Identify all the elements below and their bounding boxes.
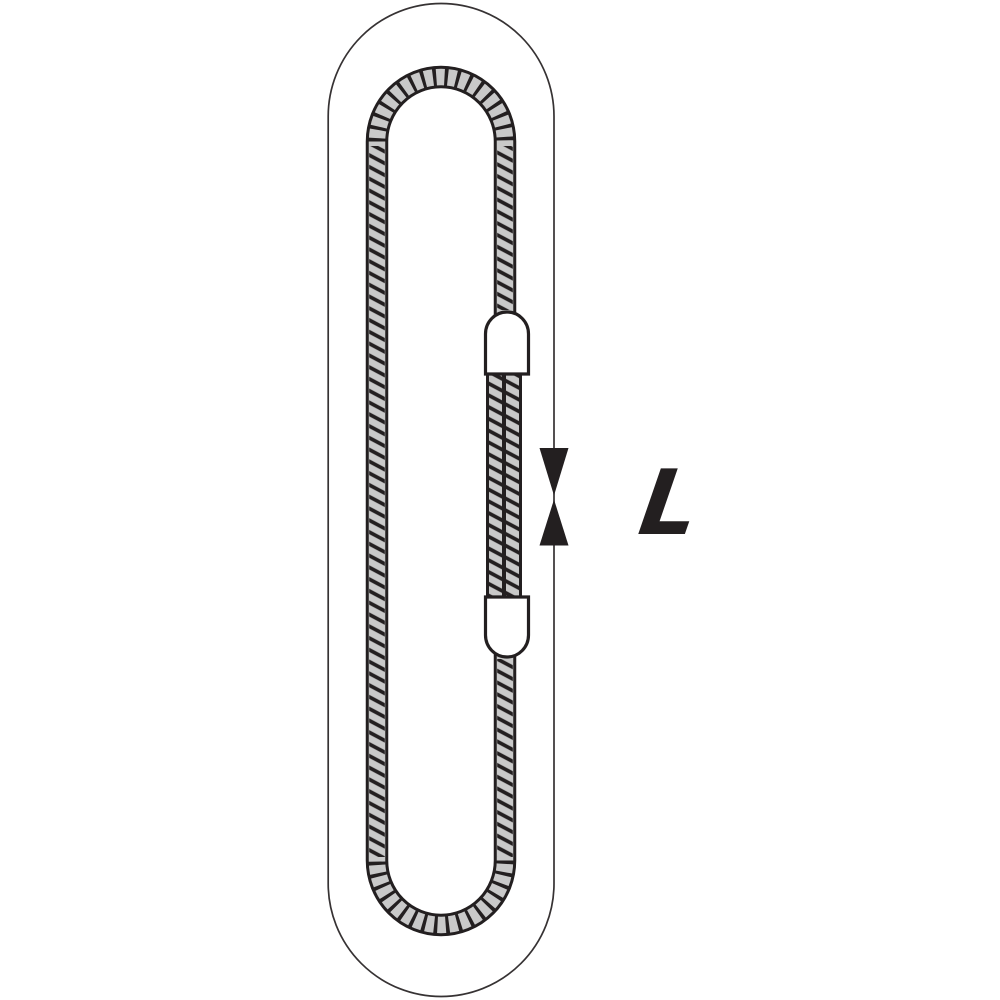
dimension-label: L (623, 450, 716, 555)
rope-hatch-right-upper-strand (497, 146, 513, 310)
bottom-ferrule (486, 597, 529, 657)
rope-hatch-right-lower-strand (497, 659, 513, 857)
top-ferrule (486, 312, 529, 374)
rope-hatch-left-strand (369, 146, 385, 857)
splice-strand-left-hatch (489, 375, 502, 596)
doubled-rope-section (488, 372, 521, 599)
splice-strand-right-hatch (506, 375, 519, 596)
diagram-canvas: L (0, 0, 1000, 1000)
wire-rope-sling-diagram: L (0, 0, 1000, 1000)
